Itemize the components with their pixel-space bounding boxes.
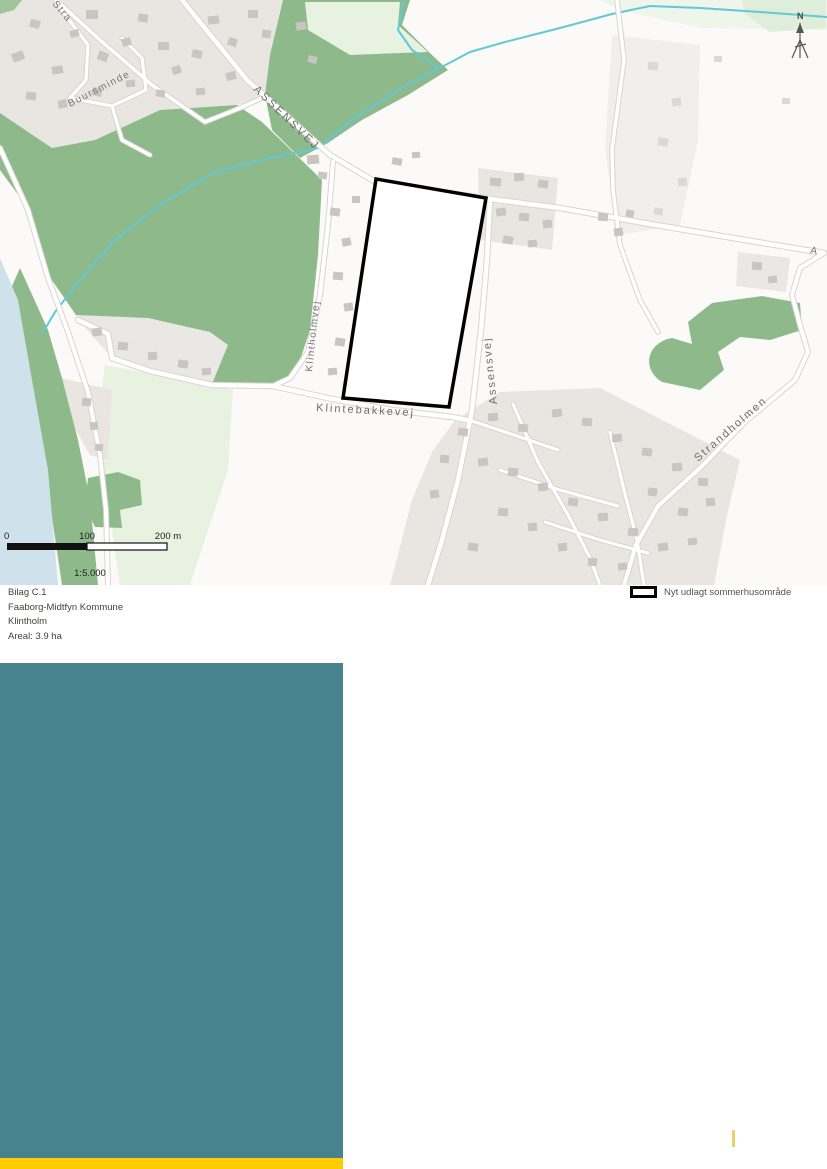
north-label: N xyxy=(797,11,804,21)
legend-label: Nyt udlagt sommerhusområde xyxy=(664,587,791,598)
scale-tick-200m: 200 m xyxy=(155,531,181,542)
topographic-map: ASSENSVEJ Assensvej Klintholmvej Klinteb… xyxy=(0,0,827,585)
scale-ratio: 1:5.000 xyxy=(74,568,106,579)
map-info-block: Bilag C.1 Faaborg-Midtfyn Kommune Klinth… xyxy=(8,586,123,644)
scale-tick-0: 0 xyxy=(4,531,9,542)
info-area: Areal: 3.9 ha xyxy=(8,630,123,645)
yellow-accent-bar xyxy=(0,1158,343,1169)
teal-color-block xyxy=(0,663,343,1158)
info-municipality: Faaborg-Midtfyn Kommune xyxy=(8,601,123,616)
scale-bar-black-segment xyxy=(7,543,87,550)
yellow-tick-mark xyxy=(732,1130,735,1147)
info-attachment: Bilag C.1 xyxy=(8,586,123,601)
info-site-name: Klintholm xyxy=(8,615,123,630)
legend: Nyt udlagt sommerhusområde xyxy=(630,586,791,598)
scale-tick-100: 100 xyxy=(79,531,95,542)
scale-bar-white-segment xyxy=(87,543,167,550)
legend-swatch-site-outline xyxy=(630,586,657,598)
map-canvas: ASSENSVEJ Assensvej Klintholmvej Klinteb… xyxy=(0,0,827,585)
